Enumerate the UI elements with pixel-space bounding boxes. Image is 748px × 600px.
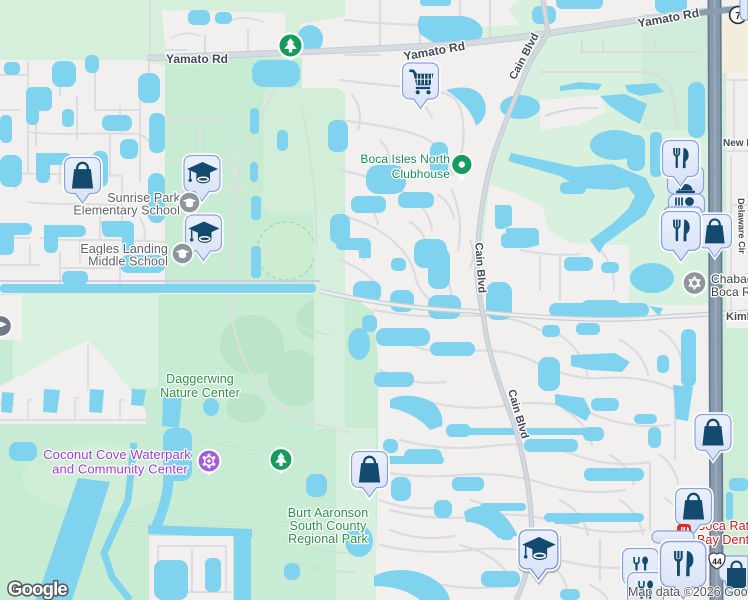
svg-text:and Community Center: and Community Center bbox=[52, 462, 188, 477]
svg-text:Kimberly: Kimberly bbox=[726, 311, 748, 323]
svg-text:44: 44 bbox=[712, 557, 722, 567]
svg-text:Google: Google bbox=[8, 578, 67, 599]
svg-text:Middle School: Middle School bbox=[88, 255, 168, 269]
svg-text:New Lo: New Lo bbox=[723, 138, 748, 149]
svg-text:Clubhouse: Clubhouse bbox=[392, 167, 451, 181]
svg-text:Nature Center: Nature Center bbox=[160, 386, 240, 400]
svg-text:Regional Park: Regional Park bbox=[288, 532, 368, 546]
svg-text:Delaware Cir: Delaware Cir bbox=[736, 198, 747, 254]
svg-text:Elementary School: Elementary School bbox=[73, 204, 180, 218]
svg-text:Boca Isles North: Boca Isles North bbox=[360, 152, 450, 166]
svg-text:Burt Aaronson: Burt Aaronson bbox=[288, 506, 369, 520]
svg-text:Chabad o: Chabad o bbox=[711, 272, 748, 286]
svg-text:Boca Rat: Boca Rat bbox=[711, 285, 748, 299]
svg-text:Coconut Cove Waterpark: Coconut Cove Waterpark bbox=[43, 447, 191, 462]
svg-text:South County: South County bbox=[290, 519, 368, 533]
svg-text:Yamato Rd: Yamato Rd bbox=[166, 52, 228, 66]
svg-text:Daggerwing: Daggerwing bbox=[166, 372, 234, 386]
svg-text:Map data ©2026 Google: Map data ©2026 Google bbox=[628, 585, 748, 599]
